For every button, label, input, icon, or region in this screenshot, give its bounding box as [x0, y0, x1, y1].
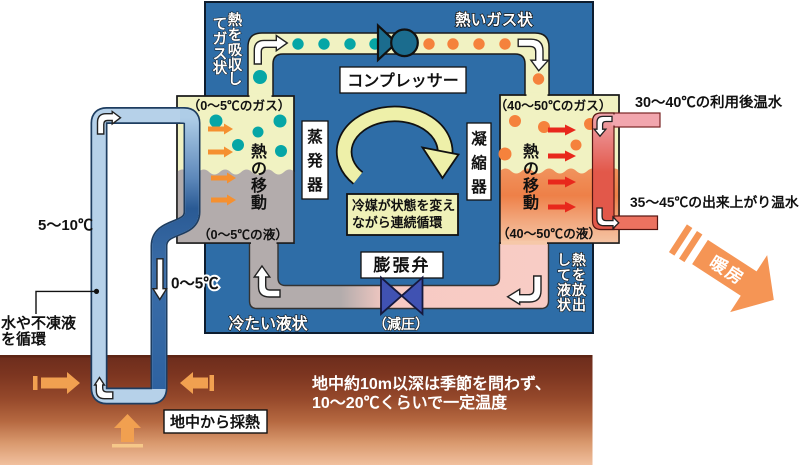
svg-text:凝: 凝: [471, 130, 487, 148]
svg-text:地中から採熱: 地中から採熱: [170, 413, 260, 431]
svg-text:地中約10m以深は季節を問わず、: 地中約10m以深は季節を問わず、: [312, 374, 551, 393]
svg-text:熱: 熱: [572, 252, 586, 268]
svg-text:状: 状: [557, 297, 572, 313]
svg-text:し: し: [228, 71, 243, 88]
svg-text:（40〜50℃のガス）: （40〜50℃のガス）: [494, 98, 611, 113]
svg-text:出: 出: [572, 297, 586, 313]
svg-text:膨張弁: 膨張弁: [374, 255, 431, 275]
svg-text:器: 器: [306, 176, 323, 194]
svg-text:10〜20℃くらいで一定温度: 10〜20℃くらいで一定温度: [312, 393, 508, 412]
svg-text:の: の: [251, 161, 267, 178]
svg-text:し: し: [557, 252, 571, 268]
svg-text:熱: 熱: [228, 11, 243, 29]
svg-text:吸: 吸: [228, 42, 243, 59]
svg-text:ガ: ガ: [213, 31, 228, 48]
svg-text:て: て: [557, 267, 571, 283]
svg-text:（0〜5℃のガス）: （0〜5℃のガス）: [188, 98, 291, 113]
svg-text:35〜45℃の出来上がり温水: 35〜45℃の出来上がり温水: [630, 194, 799, 210]
svg-text:熱: 熱: [523, 142, 539, 161]
svg-text:5〜10℃: 5〜10℃: [38, 217, 93, 234]
svg-text:熱いガス状: 熱いガス状: [455, 10, 533, 29]
svg-text:動: 動: [251, 193, 267, 212]
svg-text:（0〜5℃の液）: （0〜5℃の液）: [198, 227, 288, 242]
svg-text:液: 液: [557, 282, 572, 298]
svg-text:状: 状: [213, 59, 228, 77]
svg-text:移: 移: [251, 176, 267, 195]
svg-text:動: 動: [523, 193, 539, 212]
svg-text:器: 器: [470, 178, 487, 196]
svg-text:放: 放: [571, 282, 587, 298]
svg-text:コンプレッサー: コンプレッサー: [347, 71, 459, 90]
svg-text:冷たい液状: 冷たい液状: [229, 314, 308, 333]
svg-text:冷媒が状態を変え: 冷媒が状態を変え: [352, 198, 455, 213]
svg-text:を: を: [228, 27, 243, 44]
svg-text:縮: 縮: [471, 153, 487, 172]
svg-text:（40〜50℃の液）: （40〜50℃の液）: [497, 226, 601, 241]
svg-text:蒸: 蒸: [307, 127, 323, 146]
svg-text:移: 移: [523, 176, 539, 195]
svg-text:を: を: [572, 267, 586, 283]
svg-text:の: の: [523, 161, 539, 178]
svg-text:水や不凍液: 水や不凍液: [1, 314, 77, 332]
svg-text:を循環: を循環: [1, 330, 47, 348]
svg-text:ながら連続循環: ながら連続循環: [352, 215, 442, 230]
svg-text:発: 発: [306, 151, 323, 170]
svg-text:て: て: [213, 17, 228, 33]
svg-text:30〜40℃の利用後温水: 30〜40℃の利用後温水: [635, 93, 783, 111]
svg-text:熱: 熱: [251, 142, 267, 161]
svg-text:0〜5℃: 0〜5℃: [171, 276, 219, 293]
svg-text:（減圧）: （減圧）: [373, 316, 429, 332]
